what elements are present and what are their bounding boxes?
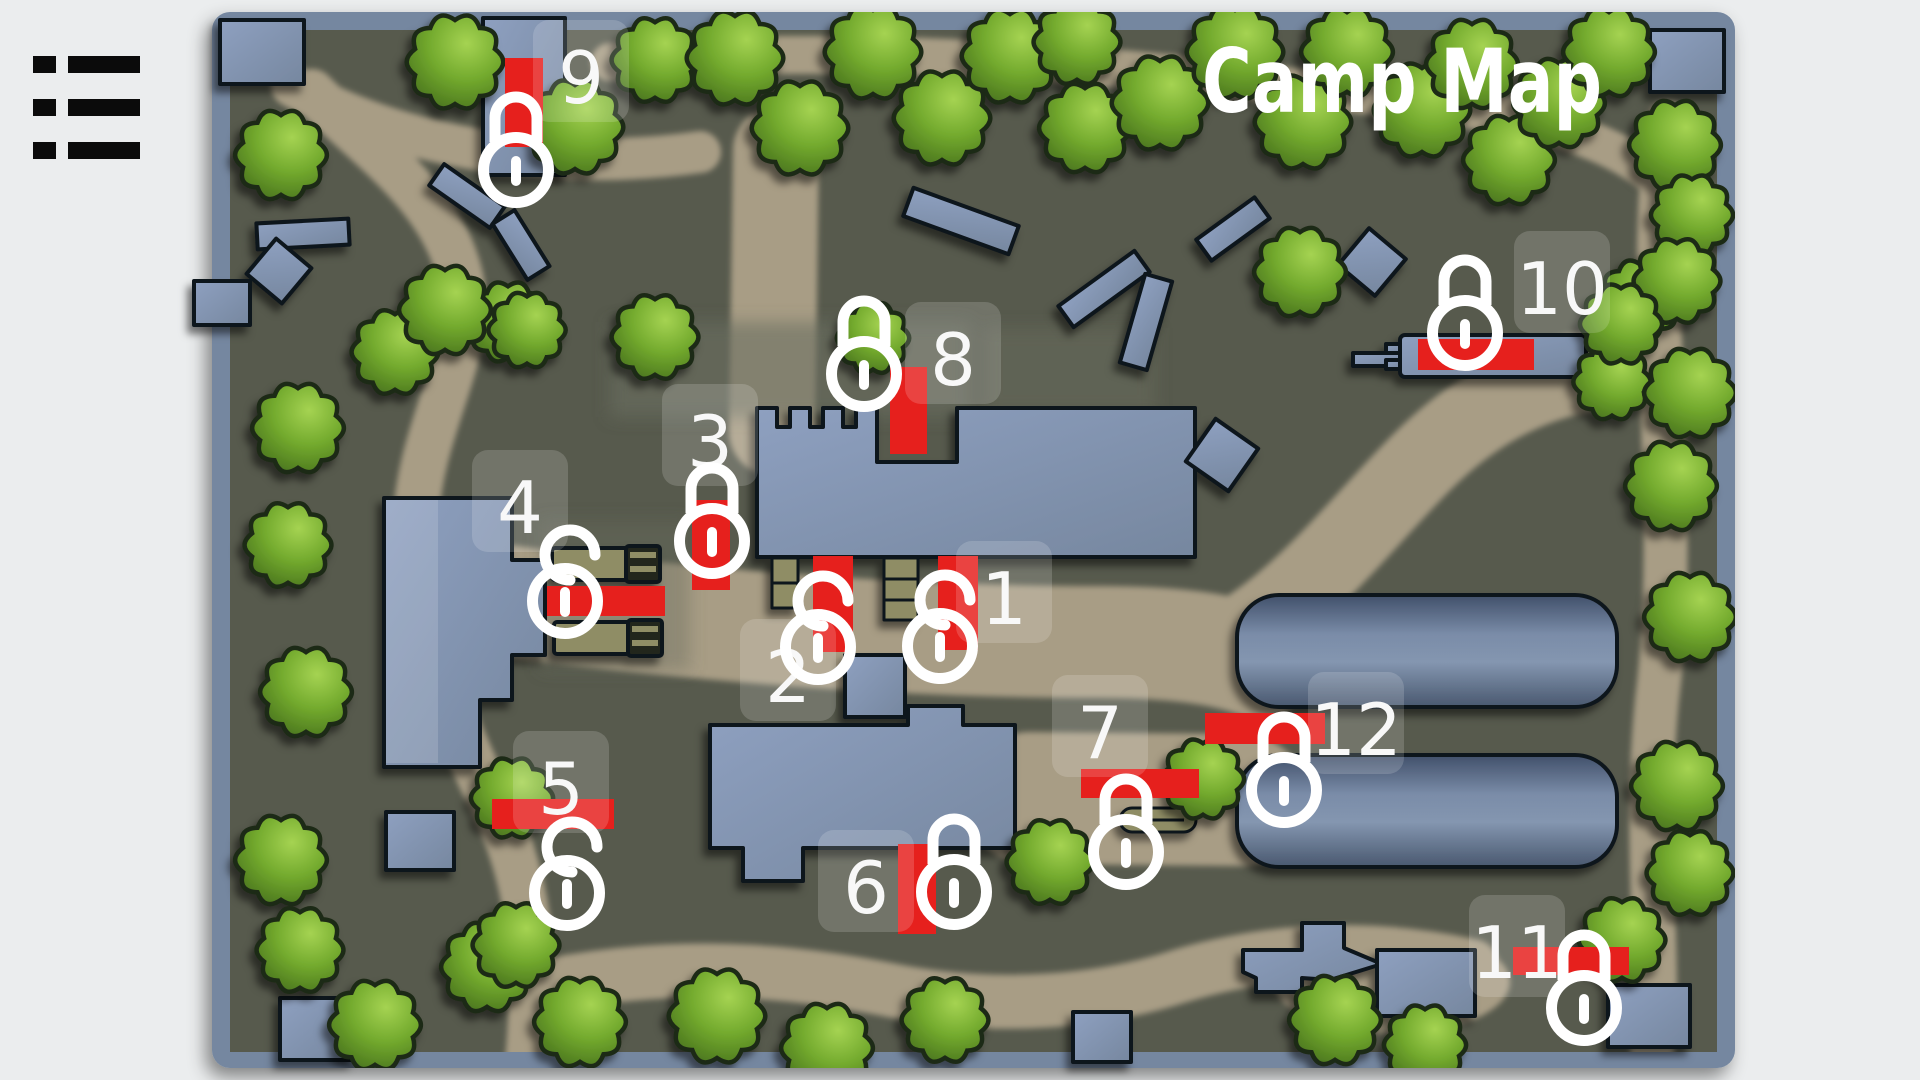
corner-tower bbox=[1650, 30, 1724, 92]
building bbox=[845, 655, 905, 717]
tree bbox=[1034, 0, 1121, 84]
menu-bullet bbox=[33, 99, 56, 116]
storage-tank bbox=[1237, 595, 1617, 707]
marker-number-4: 4 bbox=[497, 466, 543, 550]
menu-line bbox=[68, 99, 140, 116]
tree bbox=[1647, 831, 1734, 915]
tree bbox=[488, 293, 565, 367]
menu-bullet bbox=[33, 56, 56, 73]
tree bbox=[1644, 349, 1736, 437]
menu-button[interactable] bbox=[33, 56, 140, 159]
tree bbox=[534, 978, 626, 1066]
building bbox=[1073, 1012, 1131, 1062]
tree bbox=[1631, 742, 1723, 830]
bench bbox=[194, 281, 250, 325]
tree bbox=[245, 503, 332, 587]
marker-number-1: 1 bbox=[981, 557, 1027, 641]
list-menu-icon bbox=[33, 99, 140, 116]
building bbox=[386, 812, 454, 870]
tree bbox=[687, 12, 784, 105]
marker-number-10: 10 bbox=[1516, 247, 1608, 331]
tree bbox=[612, 295, 699, 379]
tree bbox=[1625, 442, 1717, 530]
tree bbox=[1254, 228, 1346, 316]
tree bbox=[752, 82, 849, 175]
storage-tank bbox=[1237, 755, 1617, 867]
marker-number-6: 6 bbox=[843, 846, 889, 930]
corner-tower bbox=[220, 20, 304, 84]
marker-number-9: 9 bbox=[558, 36, 604, 120]
tree bbox=[669, 970, 766, 1063]
tree bbox=[329, 981, 421, 1069]
camp-map-screen: 123456789101112 Camp Map bbox=[0, 0, 1920, 1080]
tree bbox=[235, 111, 327, 199]
marker-number-12: 12 bbox=[1310, 688, 1402, 772]
list-menu-icon bbox=[33, 56, 140, 73]
marker-number-8: 8 bbox=[930, 318, 976, 402]
tree bbox=[902, 978, 989, 1062]
tree bbox=[399, 266, 491, 354]
menu-bullet bbox=[33, 142, 56, 159]
tree bbox=[257, 908, 344, 992]
menu-line bbox=[68, 56, 140, 73]
camp-map-image: 123456789101112 Camp Map bbox=[0, 0, 1920, 1080]
tree bbox=[407, 16, 504, 109]
tree bbox=[252, 384, 344, 472]
building bbox=[757, 408, 1195, 557]
tree bbox=[781, 1004, 873, 1080]
menu-line bbox=[68, 142, 140, 159]
marker-number-7: 7 bbox=[1077, 691, 1123, 775]
tree bbox=[1007, 820, 1094, 904]
page-title: Camp Map bbox=[1202, 30, 1602, 133]
tree bbox=[235, 816, 327, 904]
marker-number-11: 11 bbox=[1471, 911, 1563, 995]
tree bbox=[1644, 573, 1736, 661]
tree bbox=[1384, 1006, 1466, 1080]
list-menu-icon bbox=[33, 142, 140, 159]
tree bbox=[1289, 976, 1381, 1064]
tree bbox=[260, 648, 352, 736]
